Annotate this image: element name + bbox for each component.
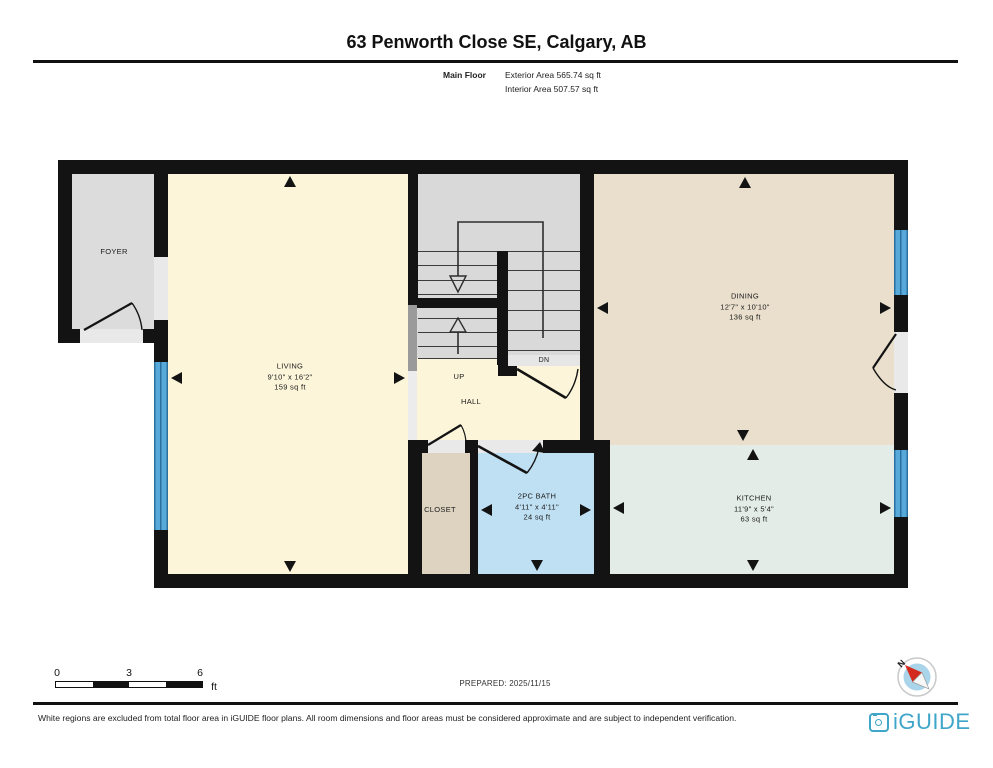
opening-foyer-living (154, 257, 168, 320)
wall-top (58, 160, 908, 174)
threshold-dining-door (894, 332, 908, 393)
iguide-logo-text: iGUIDE (893, 709, 971, 735)
wall-stair-left (408, 174, 418, 305)
foyer-label: FOYER (100, 247, 127, 258)
compass-north-text: N (896, 658, 908, 670)
wall-bottom (154, 574, 908, 588)
scale-tick-0: 0 (54, 667, 60, 679)
threshold-entry-door (80, 329, 143, 343)
opening-bath-door (478, 440, 543, 453)
wall-closet-bath-divider (470, 440, 478, 574)
wall-closet-left (408, 440, 422, 574)
wall-foyer-divider-upper (154, 160, 168, 257)
iguide-logo: iGUIDE (869, 709, 971, 735)
scale-bar-segments (55, 681, 203, 688)
closet-label: CLOSET (424, 505, 456, 516)
kitchen-label: KITCHEN 11'9" x 5'4" 63 sq ft (734, 493, 774, 525)
living-label: LIVING 9'10" x 16'2" 159 sq ft (267, 361, 312, 393)
bath-label: 2PC BATH 4'11" x 4'11" 24 sq ft (515, 491, 559, 523)
hall-label: HALL (461, 397, 481, 408)
stairs-up-label: UP (453, 372, 464, 383)
wall-bath-right (594, 440, 610, 574)
prepared-date: PREPARED: 2025/11/15 (400, 679, 610, 688)
window-kitchen-right (894, 450, 908, 517)
wall-foyer-divider-lower (154, 320, 168, 343)
scale-tick-6: 6 (197, 667, 203, 679)
compass-icon: N (893, 653, 941, 701)
wall-stair-divider (497, 251, 508, 365)
stairs-dn-label: DN (539, 356, 550, 367)
scale-unit: ft (211, 681, 217, 693)
iguide-logo-icon (869, 713, 889, 732)
floorplan: FOYER LIVING 9'10" x 16'2" 159 sq ft DIN… (0, 0, 993, 768)
wall-hall-bottom-a (408, 440, 430, 453)
window-living-left (154, 362, 168, 530)
dining-label: DINING 12'7" x 10'10" 136 sq ft (720, 291, 770, 323)
stair-railing (408, 305, 417, 371)
opening-living-hall (408, 371, 417, 440)
wall-stair-right (580, 174, 594, 453)
window-dining-right (894, 230, 908, 295)
scale-tick-3: 3 (126, 667, 132, 679)
opening-closet-door (428, 440, 465, 453)
wall-left-upper (58, 160, 72, 343)
floorplan-page: { "header": { "title": "63 Penworth Clos… (0, 0, 993, 768)
footer-divider (33, 702, 958, 705)
footer-disclaimer: White regions are excluded from total fl… (38, 713, 828, 723)
wall-stair-mid (417, 298, 497, 308)
